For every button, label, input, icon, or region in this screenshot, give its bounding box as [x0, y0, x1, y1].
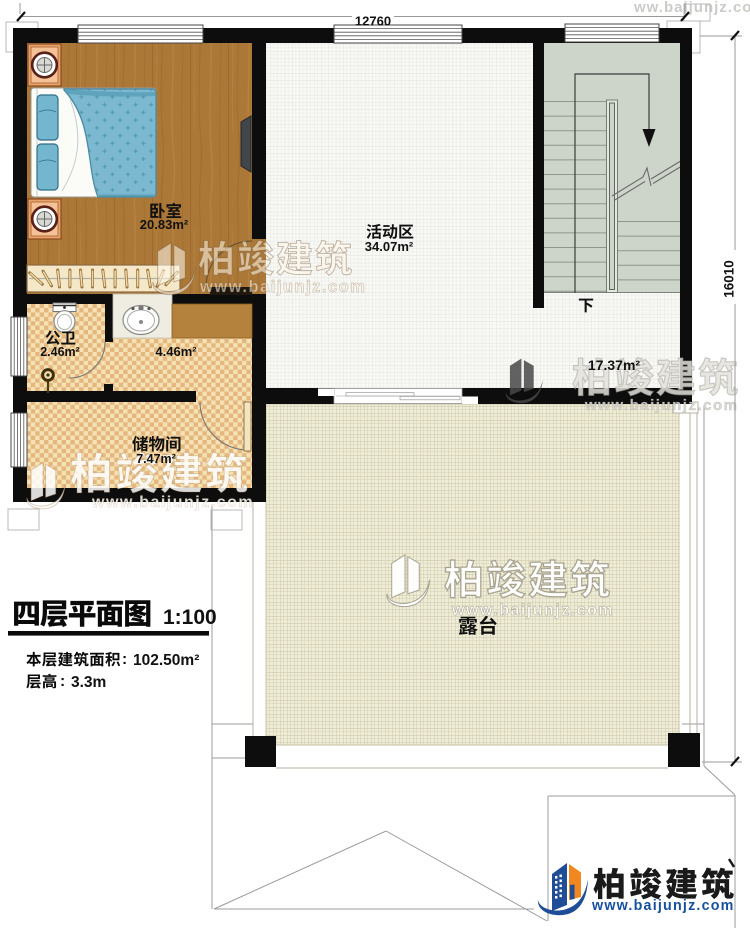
- svg-text:7.47m²: 7.47m²: [136, 452, 176, 466]
- svg-text:1:100: 1:100: [163, 606, 217, 629]
- svg-text:12760: 12760: [355, 14, 391, 29]
- svg-text:17.37m²: 17.37m²: [588, 357, 640, 373]
- svg-text:ww.baijunjz.com: ww.baijunjz.com: [633, 0, 750, 16]
- svg-text:4.46m²: 4.46m²: [155, 344, 197, 359]
- svg-text:16010: 16010: [722, 260, 737, 298]
- svg-text:www.baijunjz.com: www.baijunjz.com: [591, 898, 735, 914]
- svg-text::: :: [122, 651, 127, 668]
- svg-text:www.baijunjz.com: www.baijunjz.com: [451, 602, 614, 619]
- svg-text:102.50m²: 102.50m²: [133, 652, 199, 669]
- svg-text:34.07m²: 34.07m²: [365, 239, 414, 254]
- svg-text::: :: [60, 673, 65, 690]
- svg-text:3.3m: 3.3m: [71, 674, 106, 691]
- svg-text:2.46m²: 2.46m²: [40, 345, 80, 359]
- svg-text:www.baijunjz.com: www.baijunjz.com: [91, 494, 254, 511]
- svg-text:www.baijunjz.com: www.baijunjz.com: [199, 278, 366, 296]
- svg-text:www.baijunjz.com: www.baijunjz.com: [584, 397, 738, 414]
- svg-text:20.83m²: 20.83m²: [140, 217, 189, 232]
